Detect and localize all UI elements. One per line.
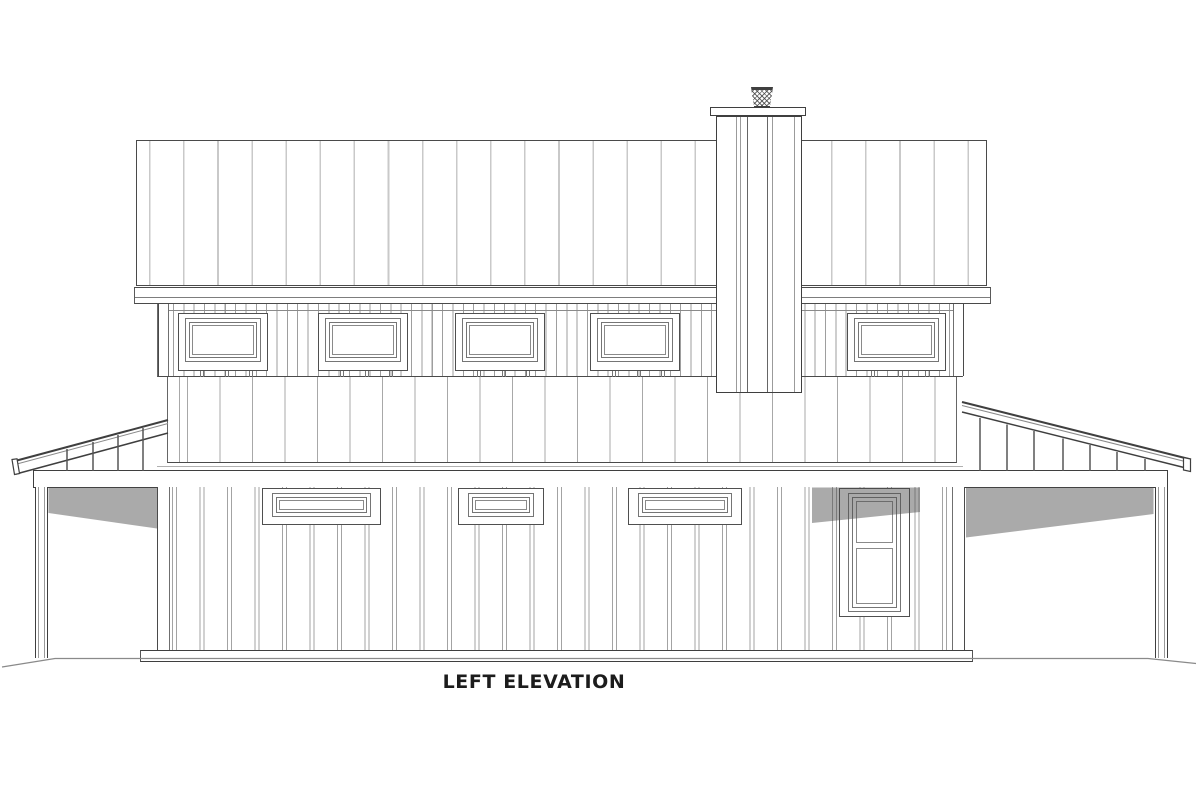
drawing-title: LEFT ELEVATION	[400, 671, 668, 692]
clerestory-window-4-glass	[604, 325, 666, 355]
chimney-cap	[710, 107, 806, 116]
porch-roof-left-line-1	[15, 420, 168, 461]
porch-shadow-1	[49, 488, 158, 529]
clerestory-window-2-glass	[332, 325, 394, 355]
porch-roof-right-line-3	[962, 412, 1184, 468]
clerestory-window-5-sash	[858, 322, 935, 358]
lower-window-2-frame	[468, 493, 534, 517]
porch-post-right-inner-line	[1158, 487, 1165, 658]
door-sash	[852, 497, 897, 608]
sill-tick	[612, 371, 613, 377]
lower-window-1-glass	[279, 500, 364, 510]
lower-window-2-sash	[472, 497, 530, 513]
sill-tick	[252, 371, 253, 377]
clerestory-window-2-sash	[329, 322, 397, 358]
wall-plate-line	[157, 466, 963, 467]
chimney-board-line	[740, 117, 741, 392]
lower-window-3-frame	[638, 493, 732, 517]
sill-tick	[200, 371, 201, 377]
sill-tick	[898, 371, 899, 377]
sill-tick	[392, 371, 393, 377]
clerestory-corner-board-left	[158, 304, 169, 376]
porch-post-right	[1155, 487, 1168, 658]
sill-tick	[640, 371, 641, 377]
clerestory-window-3	[455, 313, 545, 371]
door-glass-upper	[856, 501, 893, 543]
sill-tick	[368, 371, 369, 377]
chimney-board-line	[736, 117, 737, 392]
sill-tick	[661, 371, 662, 377]
clerestory-window-1	[178, 313, 268, 371]
clerestory-window-4	[590, 313, 680, 371]
sill-tick	[340, 371, 341, 377]
porch-post-left-inner-line	[38, 487, 45, 658]
clerestory-wall	[157, 304, 963, 377]
sill-tick	[529, 371, 530, 377]
lower-corner-board-left	[157, 487, 170, 650]
sill-tick	[871, 371, 872, 377]
lower-window-3-sash	[642, 497, 728, 513]
sill-tick	[637, 371, 638, 377]
sill-tick	[249, 371, 250, 377]
chimney-board-line	[794, 117, 795, 392]
elevation-drawing-canvas: LEFT ELEVATION	[0, 0, 1200, 800]
foundation-skirt-board	[140, 650, 973, 662]
sill-tick	[874, 371, 875, 377]
clerestory-window-1-frame	[185, 318, 261, 362]
clerestory-window-5-glass	[861, 325, 932, 355]
door-trim	[839, 488, 910, 617]
clerestory-window-3-sash	[466, 322, 534, 358]
sill-tick	[902, 371, 903, 377]
clerestory-window-1-sash	[189, 322, 257, 358]
clerestory-window-1-glass	[192, 325, 254, 355]
chimney-flue-vent	[751, 87, 773, 107]
roof-fascia	[134, 287, 991, 304]
clerestory-window-5-frame	[854, 318, 939, 362]
lower-window-3-glass	[645, 500, 725, 510]
door-frame	[848, 493, 901, 612]
lower-window-3	[628, 488, 742, 525]
porch-post-left	[35, 487, 48, 658]
clerestory-window-4-sash	[601, 322, 669, 358]
sill-tick	[502, 371, 503, 377]
clerestory-window-3-glass	[469, 325, 531, 355]
porch-roof-left-line-3	[16, 433, 168, 474]
porch-roof-right-endcap	[1184, 458, 1191, 472]
porch-roof-left-endcap	[12, 459, 20, 475]
porch-roof-left-line-2	[15, 424, 168, 465]
sill-tick	[925, 371, 926, 377]
main-roof-panel	[136, 140, 987, 286]
sill-tick	[664, 371, 665, 377]
clerestory-corner-board-right	[953, 304, 964, 376]
lower-window-2-glass	[475, 500, 527, 510]
lower-window-1	[262, 488, 381, 525]
lower-corner-board-right	[952, 487, 965, 650]
porch-shadow-3	[966, 488, 1154, 538]
door-glass-lower	[856, 548, 893, 604]
sill-tick	[505, 371, 506, 377]
clerestory-window-2-frame	[325, 318, 401, 362]
lower-window-1-sash	[276, 497, 367, 513]
sill-tick	[526, 371, 527, 377]
chimney-board-line	[772, 117, 773, 392]
clerestory-window-2	[318, 313, 408, 371]
sill-tick	[389, 371, 390, 377]
sill-tick	[480, 371, 481, 377]
chimney-body	[716, 116, 802, 393]
clerestory-top-trim	[158, 310, 962, 311]
sill-tick	[477, 371, 478, 377]
sill-tick	[929, 371, 930, 377]
sill-tick	[365, 371, 366, 377]
fascia-trim-line	[135, 297, 990, 298]
chimney-board-line	[747, 117, 748, 392]
mid-roof-band	[167, 377, 957, 463]
chimney-board-line	[767, 117, 768, 392]
lower-window-2	[458, 488, 544, 525]
sill-tick	[343, 371, 344, 377]
sill-tick	[203, 371, 204, 377]
porch-header-beam	[33, 470, 1168, 488]
porch-roof-right-line-1	[962, 402, 1191, 460]
sill-tick	[615, 371, 616, 377]
clerestory-window-4-frame	[597, 318, 673, 362]
porch-roof-right-line-2	[962, 406, 1191, 464]
clerestory-window-3-frame	[462, 318, 538, 362]
sill-tick	[228, 371, 229, 377]
sill-tick	[225, 371, 226, 377]
clerestory-window-5	[847, 313, 946, 371]
lower-window-1-frame	[272, 493, 371, 517]
